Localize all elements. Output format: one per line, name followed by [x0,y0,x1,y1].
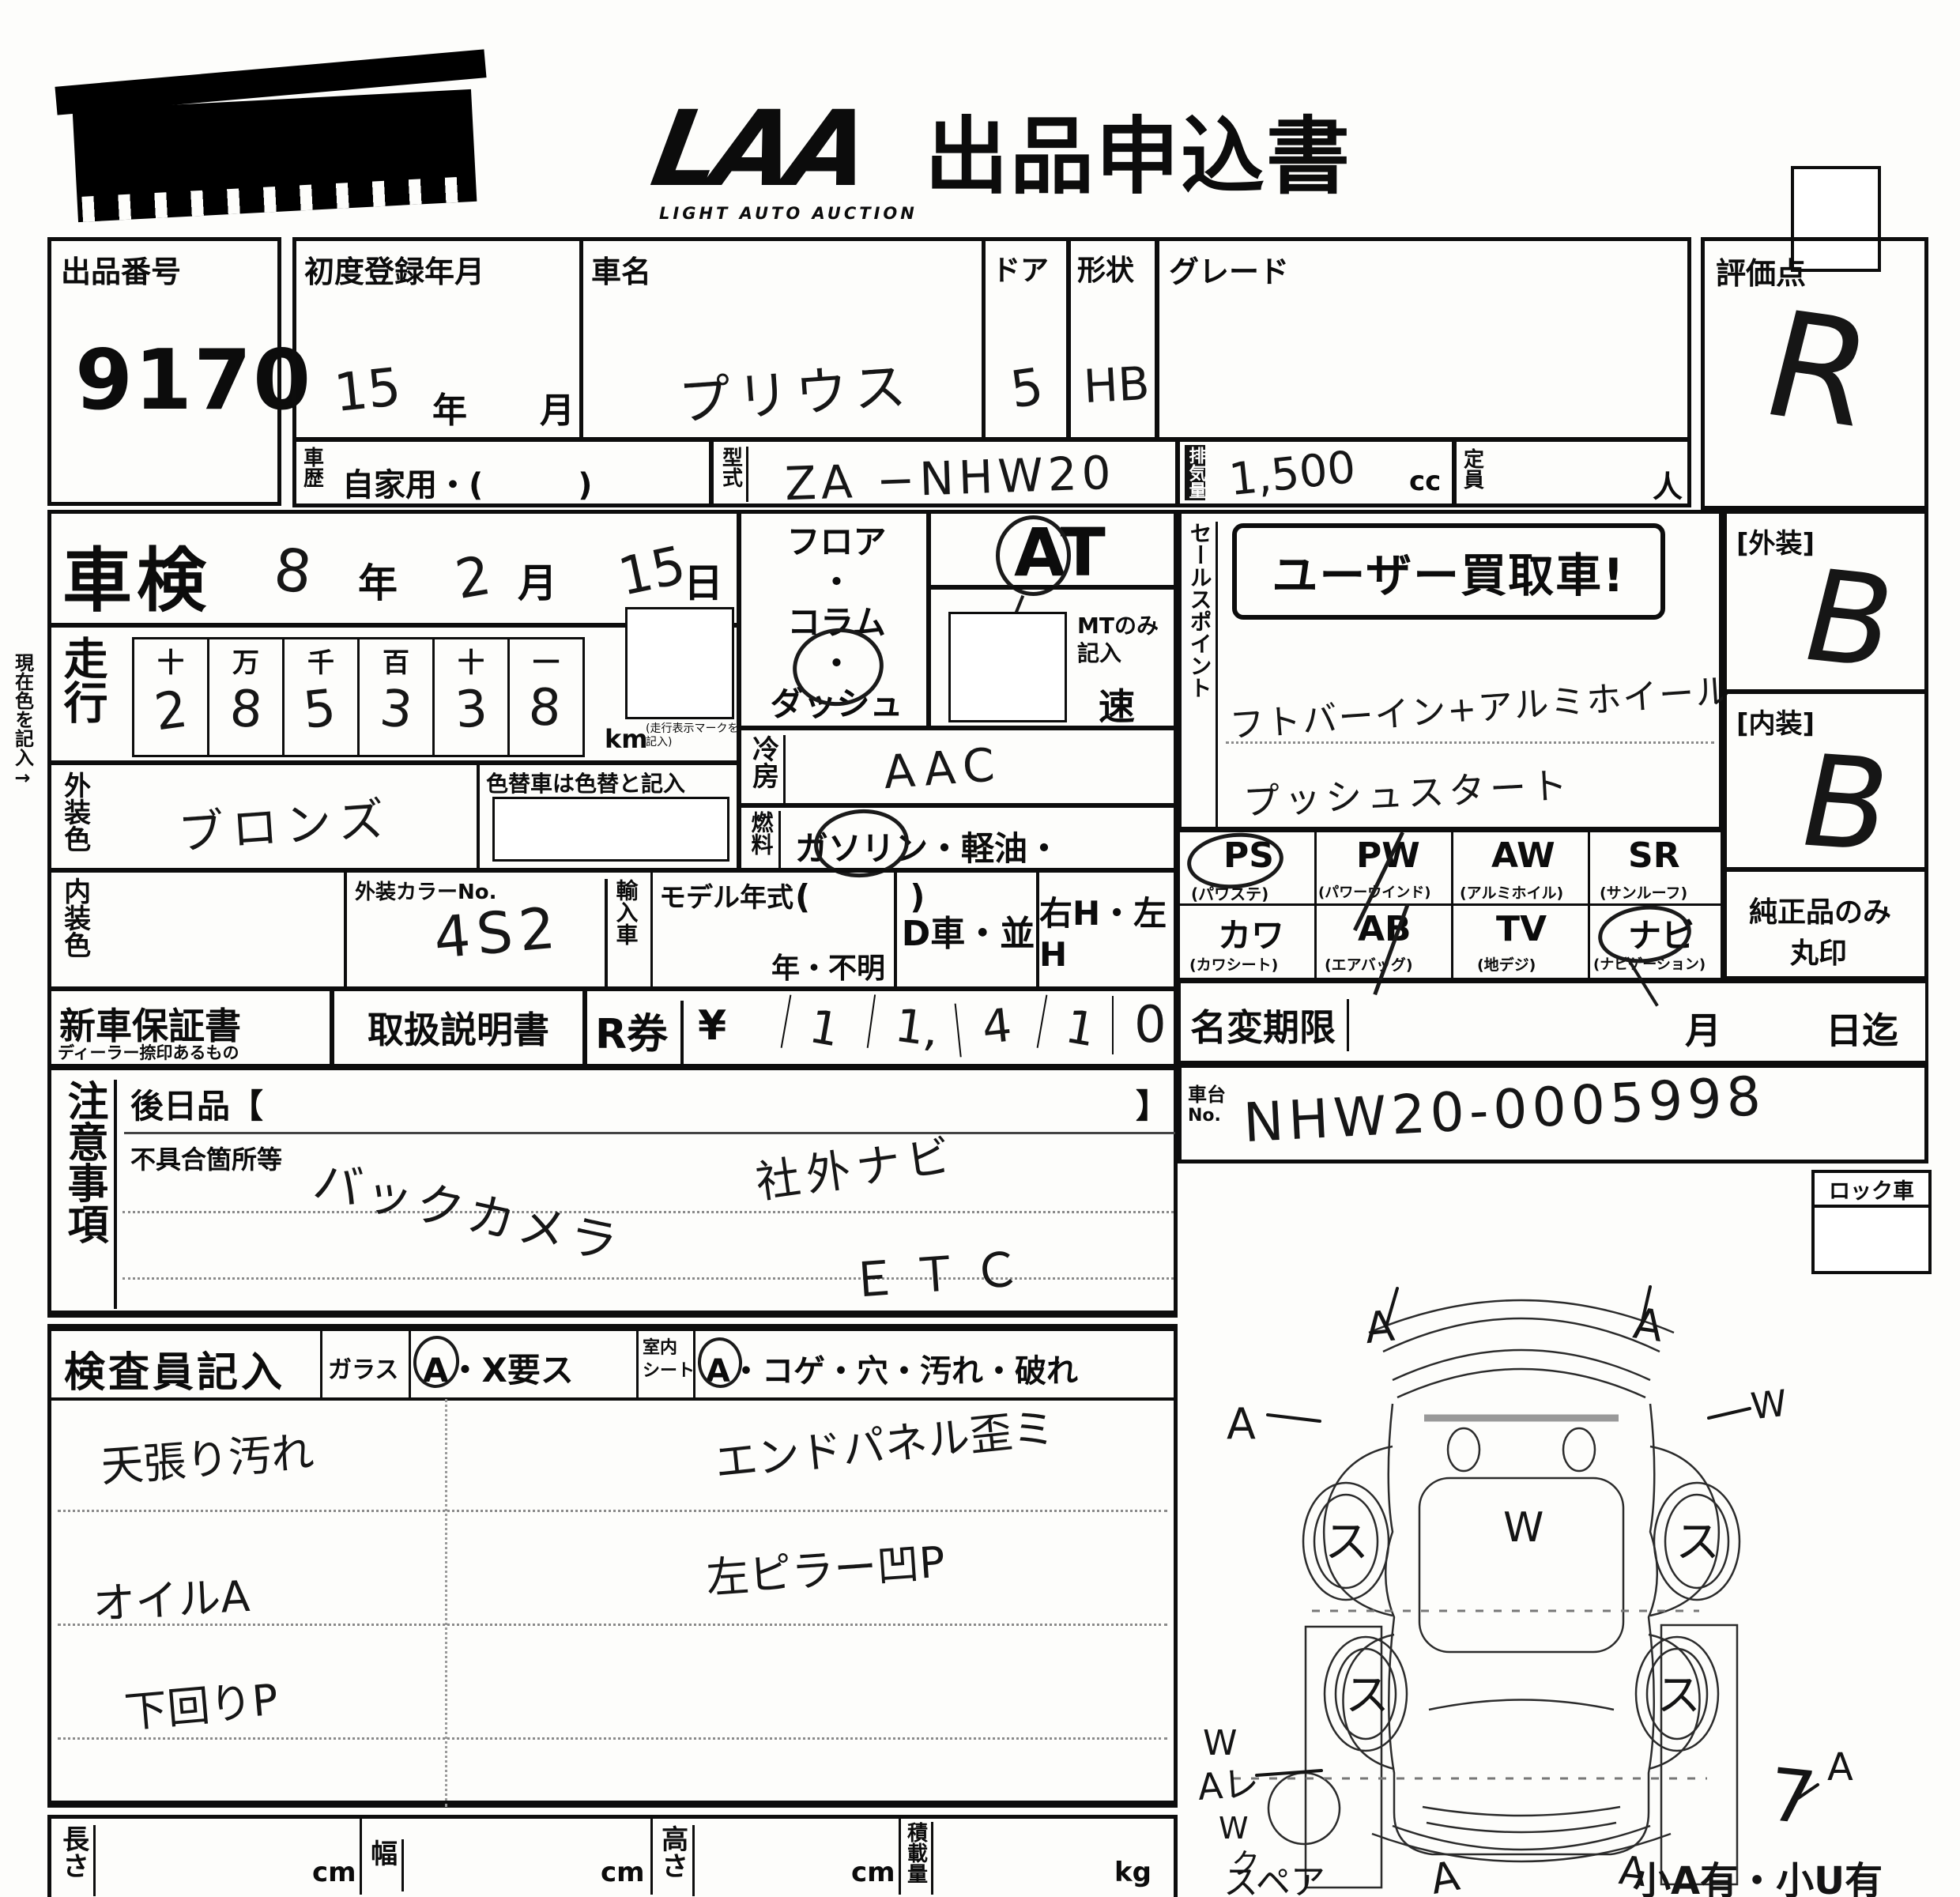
model-code-label: 型式 [720,447,748,502]
notes-section: 注意事項 後日品【 】 不具合箇所等 バックカメラ 社外ナビ ＥＴＣ [47,1066,1178,1318]
equip-code: TV [1496,909,1547,949]
equip-name: (地デジ) [1477,953,1536,975]
equip-cell-kawa: カワ (カワシート) [1178,903,1317,980]
equip-cell-tv: TV (地デジ) [1451,903,1590,980]
shape-cell: 形状 HB [1067,237,1159,441]
chassis-row: 車台 No. NHW20-0005998 [1178,1064,1928,1163]
int-color-label: 内装色 [61,877,89,958]
mileage-digit: 5 [300,679,338,741]
mileage-digit: 8 [527,678,563,738]
notes-entry-3: ＥＴＣ [847,1230,1036,1311]
ext-grade-value: B [1788,542,1910,696]
equip-name: (サンルーフ) [1600,881,1687,903]
shape-value: HB [1082,356,1151,413]
mileage-digit: 3 [377,679,415,741]
equip-name: (エアバッグ) [1325,953,1413,975]
inspector-entry-2: オイルA [91,1561,251,1631]
capacity-label: 定員 [1461,448,1483,489]
notes-entry-1: バックカメラ [308,1143,628,1275]
score-box: 評価点 R [1701,237,1928,510]
lock-car-box: ロック車 [1811,1170,1932,1274]
inspector-entry-1: 天張り汚れ [99,1417,316,1495]
equip-code: SR [1628,835,1680,876]
shaken-year: 8 [271,536,315,607]
ext-grade-label: [外装] [1736,522,1815,560]
mileage-header: 一 [510,641,582,680]
lot-label: 出品番号 [61,247,181,291]
mt-speed: 速 [1099,678,1135,730]
chassis-label-2: No. [1188,1106,1221,1126]
mileage-row: 走行 十 2 万 8 千 5 百 3 十 3 一 8 km (走行表示マークを記… [47,624,741,764]
mark-wheel-su-rl: ス [1345,1670,1389,1722]
ac-label: 冷房 [749,735,786,805]
ext-color-value: ブロンズ [175,782,394,863]
reg-year-suffix: 年 [432,382,467,432]
sales-point-cell: セールスポイント ユーザー買取車! フトバーイン+アルミホイール プッシュスター… [1178,510,1723,831]
yen-sign: ¥ [698,1002,726,1050]
laa-logo: LAA [643,89,874,210]
auction-sheet: LAA LIGHT AUTO AUCTION 出品申込書 出品番号 9170 初… [0,0,1960,1897]
mark-left-fender-a: A [1227,1399,1256,1449]
mileage-label: 走行 [59,635,104,724]
mark-rear-left-w: W [1219,1811,1249,1846]
inspector-entry-4: エンドパネル歪ミ [711,1393,1057,1491]
ext-grade-box: [外装] B [1723,510,1928,693]
mt-cell: MTのみ記入 速 [927,586,1178,730]
dim-height-label: 高さ [658,1825,695,1896]
warranty-sub: ディーラー捺印あるもの [58,1040,239,1064]
displacement-label: 排気量 [1185,445,1205,500]
grade-cell: グレード [1155,237,1691,441]
name-change-month: 月 [1685,1002,1721,1054]
name-change-day: 日迄 [1826,1002,1898,1054]
seat-label-1: 室内 [643,1338,677,1358]
model-year-note: 年・不明 [771,945,885,986]
dim-width-label: 幅 [367,1839,404,1891]
diagram-bottom-note: 小A有・小U有 [1633,1859,1883,1897]
int-grade-box: [内装] B [1723,690,1928,871]
d-car-cell: D車・並 [894,873,1039,987]
model-year-label: モデル年式 [659,876,793,915]
glass-label: ガラス [328,1350,398,1385]
capacity-unit: 人 [1653,462,1683,506]
chassis-label-1: 車台 [1188,1079,1226,1107]
genuine-note-1: 純正品のみ [1749,889,1891,930]
mark-rear-a-left: A [1427,1853,1464,1897]
mileage-header: 十 [435,641,507,680]
capacity-cell: 定員 人 [1453,438,1691,507]
transmission-cell: フロア ・ コラム ・ ダッシュ [737,510,930,730]
dim-load-label: 積載量 [905,1822,933,1895]
mark-front-left-a: A [1363,1301,1396,1354]
car-name-label: 車名 [591,247,651,291]
equip-name: (アルミホイル) [1460,881,1563,903]
shaken-day: 15 [613,534,691,608]
mark-wheel-su-fl: ス [1325,1517,1369,1568]
manual-cell: 取扱説明書 [330,987,586,1068]
warranty-cell: 新車保証書 ディーラー捺印あるもの [47,987,334,1068]
color-no-value: 4S2 [432,894,564,971]
equip-cell-aw: AW (アルミホイル) [1451,830,1590,906]
name-change-label: 名変期限 [1190,999,1349,1051]
r-ticket-label: R券 [595,1001,684,1064]
r-ticket-group: R券 ¥ 1 1, 4 1 0 [583,987,1178,1068]
door-label: ドア [992,247,1049,289]
name-change-row: 名変期限 月 日迄 [1178,980,1928,1064]
mileage-header: 百 [360,641,432,680]
int-grade-value: B [1787,727,1905,879]
notes-later: 後日品【 [130,1080,263,1128]
spare-label: スペア [1223,1862,1325,1897]
r-digit: 1 [1037,995,1100,1058]
repaint-box [492,797,729,862]
repaint-note: 色替車は色替と記入 [486,767,685,798]
mileage-unit: km [605,724,648,754]
laa-logo-sub: LIGHT AUTO AUCTION [659,204,918,223]
current-color-note: 現在色を記入→ [13,653,32,843]
dim-load-unit: kg [1114,1857,1151,1888]
history-label: 車歴 [301,447,322,488]
dimensions-row: 長さ cm 幅 cm 高さ cm 積載量 kg [47,1815,1178,1897]
genuine-note-2: 丸印 [1790,930,1847,971]
r-digit: 4 [955,998,1015,1058]
seat-mark: A・コゲ・穴・汚れ・破れ [706,1345,1078,1391]
lot-box: 出品番号 9170 [47,237,281,506]
inspector-entry-5: 左ピラー凹P [704,1527,947,1606]
mileage-digit: 2 [151,681,191,743]
mileage-header: 千 [285,641,357,680]
equip-name: (カワシート) [1189,953,1278,975]
fuel-label: 燃料 [749,811,781,869]
import-label: 輸入車 [605,879,637,986]
at-cell: AT [927,510,1178,589]
shaken-year-suffix: 年 [358,552,398,609]
mileage-digit: 8 [228,680,264,741]
mileage-digit: 3 [453,680,489,741]
at-circle-mark [996,515,1071,596]
model-code-value: ZA −NHW20 [784,446,1117,511]
reg-month-suffix: 月 [540,382,575,432]
user-buyback-text: ユーザー買取車! [1272,538,1625,605]
mileage-mark-box [625,607,734,719]
ac-value: AAC [882,737,1004,799]
genuine-note-cell: 純正品のみ 丸印 [1723,868,1928,980]
shaken-label: 車検 [62,525,211,625]
ext-color-row: 外装色 ブロンズ 色替車は色替と記入 [47,761,741,872]
mt-note: MTのみ記入 [1077,612,1164,667]
dim-length-unit: cm [312,1857,356,1888]
ext-color-label: 外装色 [61,771,89,852]
trans-floor: フロア [786,522,886,561]
handle-cell: 右H・左H [1036,873,1178,987]
chassis-value: NHW20-0005998 [1242,1065,1766,1155]
mark-front-right-a: A [1630,1298,1666,1352]
int-grade-label: [内装] [1736,702,1815,741]
reg-value: 15 [331,356,404,424]
inspector-section: 検査員記入 ガラス A・X要ス 室内 シート A・コゲ・穴・汚れ・破れ 天張り汚… [47,1324,1178,1808]
trans-dot: ・ [820,563,853,602]
equip-cell-sr: SR (サンルーフ) [1588,830,1723,906]
model-year-cell: モデル年式 年・不明 [650,873,896,987]
shaken-month: 2 [450,545,495,612]
reg-label: 初度登録年月 [304,247,484,291]
r-digit: 1, [867,994,943,1057]
mark-right-seven: 7 [1765,1752,1819,1842]
inspector-entry-3: 下回りP [122,1665,281,1740]
mark-wheel-su-fr: ス [1675,1517,1720,1568]
notes-later-close: 】 [1136,1080,1169,1128]
ac-row: 冷房 AAC [737,726,1178,807]
user-buyback-stamp: ユーザー買取車! [1232,523,1665,620]
sales-point-label: セールスポイント [1188,522,1218,827]
mileage-unit-note: (走行表示マークを記入) [646,722,741,749]
dim-length-label: 長さ [59,1825,96,1896]
mark-left-side-w: W [1203,1723,1238,1763]
equip-code: カワ [1218,909,1284,957]
front-bumper-outer [1369,1300,1674,1333]
colors-row: 内装色 外装カラーNo. 4S2 輸入車 モデル年式 年・不明 D車・並 右H・… [47,869,1178,990]
shape-label: 形状 [1077,247,1134,289]
mileage-header: 十 [134,641,207,680]
sales-line-2: プッシュスタート [1242,756,1574,826]
displacement-value: 1,500 [1227,442,1358,506]
mark-wheel-su-rr: ス [1657,1670,1701,1722]
mark-hood-w: W [1503,1504,1543,1552]
model-code-cell: 型式 ZA −NHW20 [710,438,1179,507]
mark-right-fender-w: W [1749,1382,1789,1427]
r-digit: 1 [781,995,844,1058]
color-no-cell: 外装カラーNo. 4S2 [344,873,608,987]
shaken-month-suffix: 月 [518,552,557,609]
r-digit: 0 [1112,996,1167,1054]
seat-label-2: シート [643,1361,695,1381]
dim-width-unit: cm [601,1857,645,1888]
car-diagram: A A A W W ス ス ス ス W Aレ W ク 7 A A A スペア 小… [1185,1263,1960,1897]
mark-right-a: A [1827,1745,1853,1790]
inspector-label: 検査員記入 [64,1339,285,1398]
mark-left-side-a: Aレ [1197,1762,1261,1808]
displacement-unit: cc [1409,466,1441,497]
lock-car-label: ロック車 [1829,1174,1914,1205]
car-name-value: プリウス [676,344,914,436]
displacement-cell: 排気量 1,500 cc [1176,438,1456,507]
history-cell: 車歴 自家用・( ) [292,438,713,507]
sales-line-1: フトバーイン+アルミホイール [1228,662,1733,748]
grade-label: グレード [1169,247,1289,291]
lot-value: 9170 [75,332,312,428]
equip-code: AW [1491,835,1555,876]
mt-box [948,612,1067,722]
page-title: 出品申込書 [925,89,1351,210]
dim-height-unit: cm [851,1857,895,1888]
score-value: R [1747,280,1890,461]
history-value: 自家用・( ) [342,459,593,505]
repaint-cell: 色替車は色替と記入 [477,765,744,869]
redaction-stamp-body [73,89,477,222]
notes-label: 注意事項 [62,1080,117,1309]
fuel-row: 燃料 ガソリン・軽油・( ) [737,804,1178,872]
registration-cell: 初度登録年月 15 年 月 [292,237,583,441]
door-value: 5 [1007,358,1047,421]
shaken-day-suffix: 日 [684,552,723,609]
notes-defect-label: 不具合箇所等 [130,1140,282,1176]
door-cell: ドア 5 [982,237,1070,441]
car-name-cell: 車名 プリウス [579,237,986,441]
mileage-header: 万 [209,641,282,680]
